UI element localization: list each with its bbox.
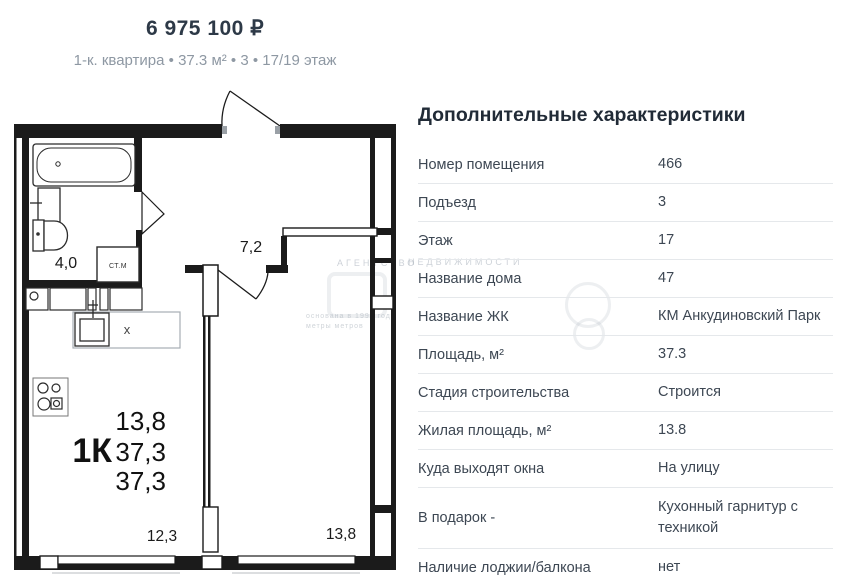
toilet bbox=[33, 220, 68, 251]
additional-characteristics-panel: Дополнительные характеристики Номер поме… bbox=[418, 96, 833, 586]
row-value: На улицу bbox=[658, 458, 833, 479]
row-label: Стадия строительства bbox=[418, 385, 658, 401]
row-label: Подъезд bbox=[418, 195, 658, 211]
bathroom-area-label: 4,0 bbox=[55, 255, 77, 272]
row-value: 47 bbox=[658, 268, 833, 289]
stove bbox=[33, 378, 68, 416]
washing-machine-label: СТ.М bbox=[109, 263, 127, 270]
table-row: Наличие лоджии/балкона нет bbox=[418, 549, 833, 586]
row-label: Название дома bbox=[418, 271, 658, 287]
table-row: Номер помещения 466 bbox=[418, 146, 833, 184]
total-area-value: 37,3 bbox=[115, 437, 166, 467]
table-row: Стадия строительства Строится bbox=[418, 374, 833, 412]
bathtub bbox=[33, 144, 135, 186]
row-label: Название ЖК bbox=[418, 309, 658, 325]
price: 6 975 100 ₽ bbox=[0, 16, 410, 41]
entrance-door bbox=[222, 91, 280, 134]
row-value: 17 bbox=[658, 230, 833, 251]
table-row: Подъезд 3 bbox=[418, 184, 833, 222]
row-label: Номер помещения bbox=[418, 157, 658, 173]
row-value: нет bbox=[658, 557, 833, 578]
row-label: Наличие лоджии/балкона bbox=[418, 560, 658, 576]
row-value: Строится bbox=[658, 382, 833, 403]
row-label: В подарок - bbox=[418, 510, 658, 526]
kitchen-counter bbox=[26, 288, 142, 310]
stove-mark: x bbox=[124, 322, 131, 337]
table-row: Этаж 17 bbox=[418, 222, 833, 260]
row-value: Кухонный гарнитур с техникой bbox=[658, 497, 833, 539]
living-area-value: 13,8 bbox=[115, 406, 166, 436]
table-row: Жилая площадь, м² 13.8 bbox=[418, 412, 833, 450]
hall-area-label: 7,2 bbox=[240, 239, 262, 256]
row-value: 13.8 bbox=[658, 420, 833, 441]
washing-machine: СТ.М bbox=[97, 247, 139, 282]
apartment-type-label: 1К bbox=[72, 432, 112, 470]
table-row: Название ЖК КМ Анкудиновский Парк bbox=[418, 298, 833, 336]
table-row: Куда выходят окна На улицу bbox=[418, 450, 833, 488]
row-label: Площадь, м² bbox=[418, 347, 658, 363]
kitchen-living-area-label: 12,3 bbox=[147, 528, 177, 545]
table-row: В подарок - Кухонный гарнитур с техникой bbox=[418, 488, 833, 549]
table-row: Название дома 47 bbox=[418, 260, 833, 298]
bathroom-door bbox=[142, 192, 164, 234]
interior-door bbox=[203, 265, 268, 316]
listing-summary: 1-к. квартира • 37.3 м² • 3 • 17/19 этаж bbox=[0, 52, 410, 69]
row-value: 3 bbox=[658, 192, 833, 213]
row-label: Жилая площадь, м² bbox=[418, 423, 658, 439]
characteristics-table: Номер помещения 466 Подъезд 3 Этаж 17 На… bbox=[418, 146, 833, 586]
panel-title: Дополнительные характеристики bbox=[418, 104, 833, 127]
row-value: 37.3 bbox=[658, 344, 833, 365]
bathroom-sink bbox=[30, 188, 60, 222]
row-label: Этаж bbox=[418, 233, 658, 249]
room-area-label: 13,8 bbox=[326, 526, 356, 543]
row-value: 466 bbox=[658, 154, 833, 175]
row-value: КМ Анкудиновский Парк bbox=[658, 306, 833, 327]
reduced-area-value: 37,3 bbox=[115, 466, 166, 496]
walls bbox=[14, 124, 396, 570]
table-row: Площадь, м² 37.3 bbox=[418, 336, 833, 374]
floor-plan-image[interactable]: СТ.М x 4,0 7,2 12,3 13,8 1К 13,8 37,3 37… bbox=[10, 88, 402, 580]
row-label: Куда выходят окна bbox=[418, 461, 658, 477]
